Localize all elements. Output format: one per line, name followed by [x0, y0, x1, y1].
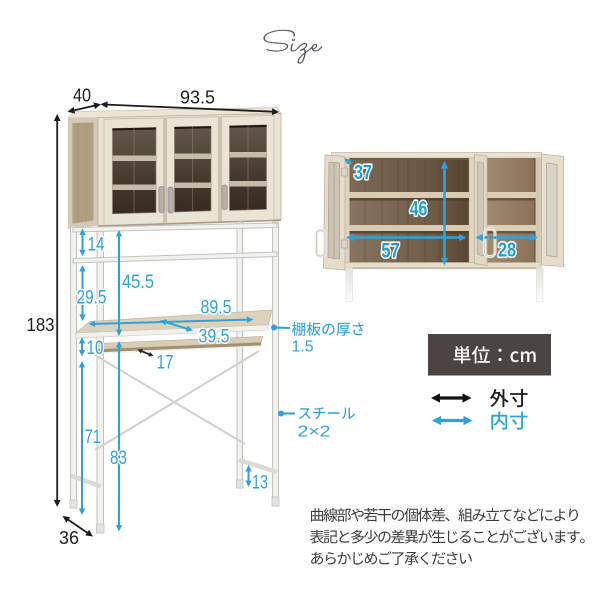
svg-text:89.5: 89.5	[201, 298, 232, 319]
svg-text:57: 57	[381, 240, 400, 263]
svg-text:39.5: 39.5	[199, 327, 230, 348]
svg-text:37: 37	[354, 162, 372, 184]
svg-text:36: 36	[59, 528, 79, 548]
svg-text:83: 83	[110, 448, 127, 469]
svg-text:93.5: 93.5	[180, 88, 215, 108]
svg-text:29.5: 29.5	[77, 288, 107, 309]
svg-text:14: 14	[88, 235, 105, 256]
svg-text:71: 71	[85, 427, 102, 448]
svg-text:2×2: 2×2	[298, 424, 331, 441]
svg-text:1.5: 1.5	[292, 339, 314, 356]
svg-text:17: 17	[157, 353, 174, 374]
svg-text:28: 28	[498, 240, 516, 262]
svg-text:46: 46	[410, 198, 428, 221]
svg-text:40: 40	[73, 86, 91, 106]
svg-text:10: 10	[87, 338, 104, 359]
svg-text:183: 183	[27, 315, 55, 335]
svg-text:13: 13	[252, 473, 268, 494]
svg-text:45.5: 45.5	[122, 272, 154, 293]
